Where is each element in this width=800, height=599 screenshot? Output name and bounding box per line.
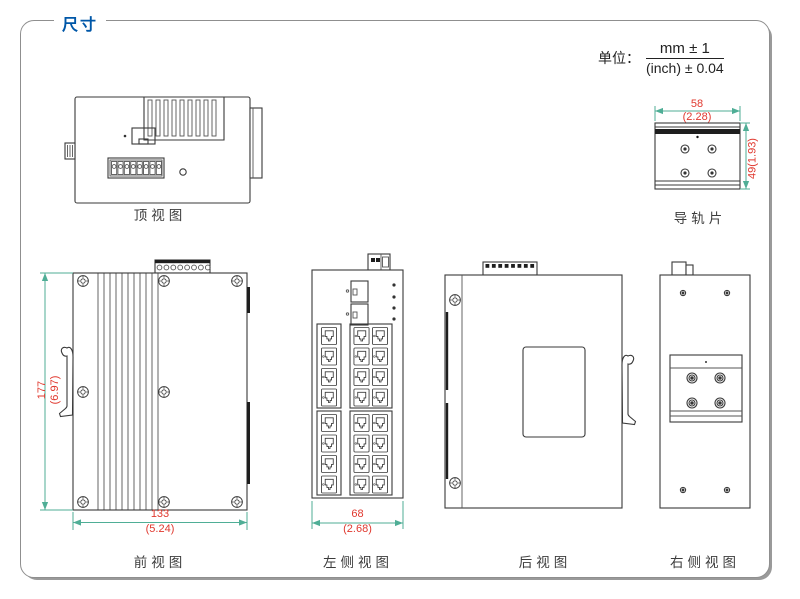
unit-note: 单位： mm ± 1 (inch) ± 0.04 bbox=[598, 40, 724, 76]
unit-label: 单位： bbox=[598, 48, 640, 68]
dimension-drawing-page: 尺寸 单位： mm ± 1 (inch) ± 0.04 bbox=[0, 0, 800, 599]
front-width-mm: 133 bbox=[73, 509, 247, 520]
rail-bracket bbox=[670, 355, 742, 422]
left-width-inch: (2.68) bbox=[312, 524, 403, 535]
front-view-drawing bbox=[30, 250, 275, 542]
din-clip-hook-rear bbox=[622, 355, 636, 424]
rail-width-inch: (2.28) bbox=[650, 112, 744, 123]
left-width-mm: 68 bbox=[312, 509, 403, 520]
din-clip-edge bbox=[250, 108, 262, 178]
front-view-label: 前视图 bbox=[110, 551, 210, 571]
top-view-label: 顶视图 bbox=[115, 204, 205, 224]
rear-view-drawing bbox=[440, 245, 640, 517]
top-view-drawing bbox=[60, 88, 270, 210]
front-height-inch: (6.97) bbox=[49, 350, 62, 430]
power-connector-side bbox=[672, 262, 693, 275]
power-connector bbox=[368, 254, 390, 270]
front-terminal-block bbox=[155, 260, 210, 273]
right-side-view-label: 右侧视图 bbox=[655, 551, 755, 571]
rear-terminal-block bbox=[483, 262, 537, 275]
unit-fraction: mm ± 1 (inch) ± 0.04 bbox=[646, 40, 724, 76]
left-side-view-drawing bbox=[303, 245, 417, 537]
rail-width-mm: 58 bbox=[650, 99, 744, 110]
right-side-view-drawing bbox=[655, 245, 770, 517]
rail-height-dim: 49(1.93) bbox=[748, 124, 759, 194]
unit-inch: (inch) ± 0.04 bbox=[646, 59, 724, 76]
rail-plate-label: 导轨片 bbox=[655, 207, 745, 227]
front-height-dim: 177 (6.97) bbox=[36, 350, 62, 430]
rear-view-label: 后视图 bbox=[495, 551, 595, 571]
unit-mm: mm ± 1 bbox=[646, 40, 724, 59]
page-title: 尺寸 bbox=[54, 11, 106, 35]
front-height-mm: 177 bbox=[36, 350, 49, 430]
front-width-inch: (5.24) bbox=[73, 524, 247, 535]
left-side-view-label: 左侧视图 bbox=[308, 551, 408, 571]
